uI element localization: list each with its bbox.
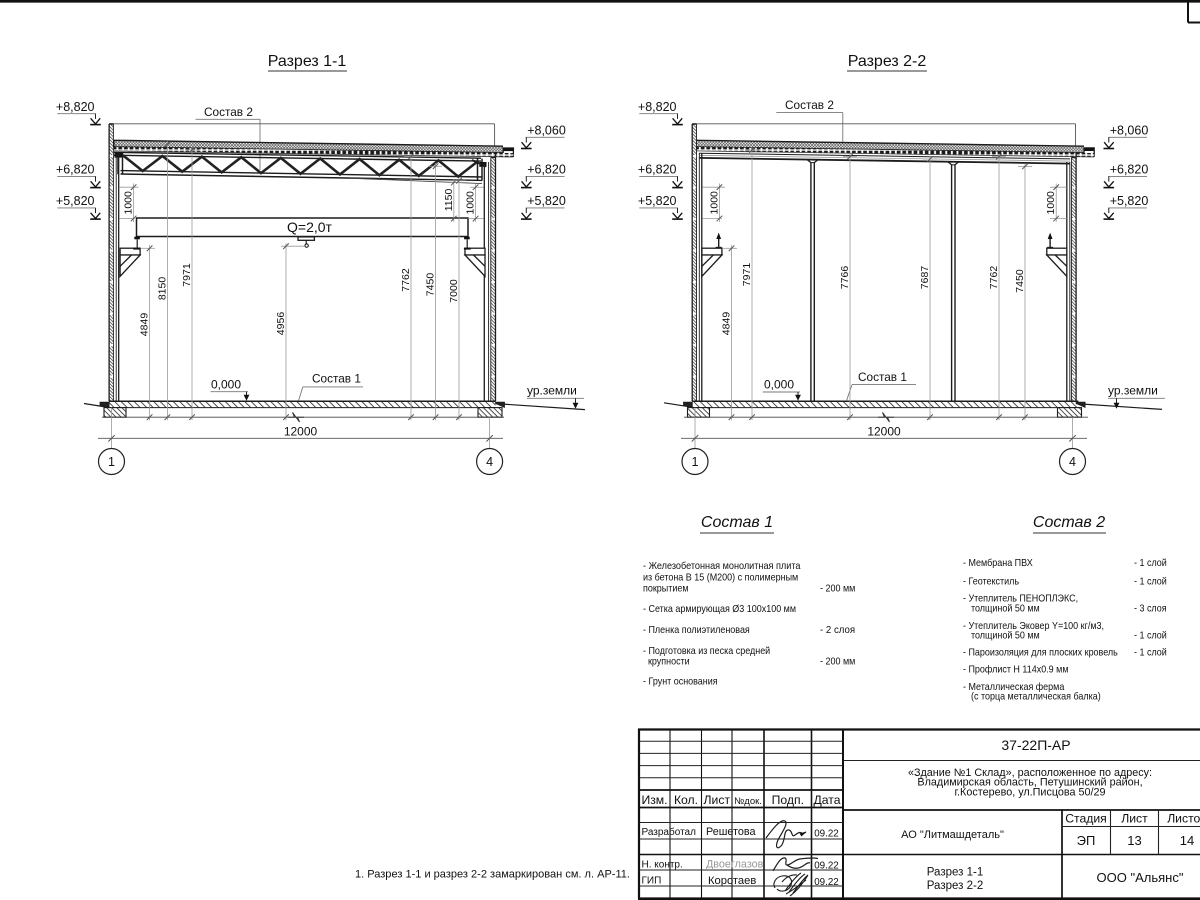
svg-text:Состав 2: Состав 2 bbox=[785, 98, 834, 112]
svg-text:7687: 7687 bbox=[919, 266, 931, 290]
svg-text:1000: 1000 bbox=[1045, 191, 1057, 215]
svg-text:- Пароизоляция для плоских кро: - Пароизоляция для плоских кровель bbox=[963, 648, 1118, 659]
svg-text:Разработал: Разработал bbox=[642, 826, 697, 838]
svg-text:- 2 слоя: - 2 слоя bbox=[820, 625, 855, 636]
svg-text:4: 4 bbox=[1069, 455, 1076, 469]
svg-text:8150: 8150 bbox=[156, 277, 168, 301]
svg-text:- 1 слой: - 1 слой bbox=[1134, 648, 1167, 659]
svg-text:+6,820: +6,820 bbox=[1110, 163, 1149, 177]
svg-text:- 1 слой: - 1 слой bbox=[1134, 631, 1167, 642]
svg-text:Q=2,0т: Q=2,0т bbox=[287, 219, 333, 235]
svg-text:(с торца металлическая балка): (с торца металлическая балка) bbox=[971, 691, 1101, 703]
svg-text:1150: 1150 bbox=[443, 189, 455, 212]
svg-text:37-22П-АР: 37-22П-АР bbox=[1001, 737, 1070, 753]
svg-text:Состав 2: Состав 2 bbox=[1033, 514, 1105, 531]
svg-text:7766: 7766 bbox=[839, 266, 851, 290]
svg-text:4: 4 bbox=[486, 455, 493, 469]
svg-text:- 3 слоя: - 3 слоя bbox=[1134, 604, 1167, 615]
svg-text:Лист: Лист bbox=[704, 793, 731, 807]
svg-text:- Сетка армирующая Ø3 100х100: - Сетка армирующая Ø3 100х100 мм bbox=[643, 604, 796, 615]
svg-text:+5,820: +5,820 bbox=[56, 194, 95, 208]
svg-text:12000: 12000 bbox=[284, 424, 318, 438]
svg-text:1. Разрез 1-1 и разрез 2-2 зам: 1. Разрез 1-1 и разрез 2-2 замаркирован … bbox=[355, 869, 630, 881]
svg-text:7971: 7971 bbox=[741, 263, 753, 287]
svg-text:Листов: Листов bbox=[1167, 812, 1200, 826]
svg-text:7762: 7762 bbox=[400, 268, 412, 292]
svg-text:АО "Литмашдеталь": АО "Литмашдеталь" bbox=[901, 829, 1004, 841]
svg-text:1: 1 bbox=[692, 455, 699, 469]
svg-text:7000: 7000 bbox=[448, 279, 460, 303]
svg-text:Разрез 2-2: Разрез 2-2 bbox=[848, 53, 927, 70]
svg-text:толщиной 50 мм: толщиной 50 мм bbox=[971, 631, 1040, 642]
svg-text:09.22: 09.22 bbox=[814, 877, 839, 888]
svg-text:ур.земли: ур.земли bbox=[1108, 384, 1158, 398]
svg-text:7450: 7450 bbox=[1014, 269, 1026, 293]
svg-text:Кол.: Кол. bbox=[674, 793, 698, 807]
svg-text:ООО "Альянс": ООО "Альянс" bbox=[1097, 870, 1184, 885]
svg-text:покрытием: покрытием bbox=[643, 584, 689, 595]
svg-text:4956: 4956 bbox=[275, 312, 287, 336]
svg-text:09.22: 09.22 bbox=[814, 829, 839, 840]
svg-text:№док.: №док. bbox=[734, 796, 762, 807]
svg-text:Разрез 1-1: Разрез 1-1 bbox=[927, 866, 983, 878]
svg-text:Коротаев: Коротаев bbox=[708, 875, 756, 887]
svg-text:+8,060: +8,060 bbox=[1110, 124, 1149, 138]
svg-text:+8,820: +8,820 bbox=[56, 100, 95, 114]
svg-text:Н. контр.: Н. контр. bbox=[642, 859, 683, 870]
svg-text:- 200 мм: - 200 мм bbox=[820, 657, 855, 668]
svg-text:Разрез 2-2: Разрез 2-2 bbox=[927, 880, 983, 892]
svg-text:7450: 7450 bbox=[425, 273, 437, 297]
svg-text:из бетона В 15 (М200) с полиме: из бетона В 15 (М200) с полимерным bbox=[643, 572, 798, 584]
svg-text:Двоеглазов: Двоеглазов bbox=[706, 858, 764, 870]
svg-text:Решетова: Решетова bbox=[706, 826, 756, 838]
svg-text:12000: 12000 bbox=[867, 424, 901, 438]
svg-text:толщиной 50 мм: толщиной 50 мм bbox=[971, 604, 1040, 615]
svg-text:1: 1 bbox=[108, 455, 115, 469]
svg-text:+8,820: +8,820 bbox=[638, 100, 677, 114]
svg-text:4849: 4849 bbox=[721, 312, 733, 336]
svg-text:Состав 2: Состав 2 bbox=[204, 105, 253, 119]
svg-text:Изм.: Изм. bbox=[641, 793, 667, 807]
svg-text:+6,820: +6,820 bbox=[56, 163, 95, 177]
svg-text:+8,060: +8,060 bbox=[527, 124, 566, 138]
svg-text:- 200 мм: - 200 мм bbox=[820, 584, 855, 595]
svg-text:Подп.: Подп. bbox=[772, 793, 804, 807]
svg-text:ГИП: ГИП bbox=[642, 876, 662, 887]
svg-text:1000: 1000 bbox=[708, 191, 720, 215]
svg-text:7762: 7762 bbox=[988, 266, 1000, 290]
svg-text:13: 13 bbox=[1127, 833, 1141, 848]
svg-text:Разрез 1-1: Разрез 1-1 bbox=[268, 53, 347, 70]
svg-text:7971: 7971 bbox=[181, 263, 193, 287]
svg-text:г.Костерево, ул.Писцова 50/29: г.Костерево, ул.Писцова 50/29 bbox=[954, 786, 1105, 798]
svg-text:- 1 слой: - 1 слой bbox=[1134, 558, 1167, 569]
svg-text:- Пленка полиэтиленовая: - Пленка полиэтиленовая bbox=[643, 625, 750, 636]
svg-text:4849: 4849 bbox=[139, 313, 151, 337]
svg-text:крупности: крупности bbox=[643, 657, 690, 668]
svg-text:- Подготовка из песка средней: - Подготовка из песка средней bbox=[643, 646, 770, 657]
svg-text:Стадия: Стадия bbox=[1065, 812, 1107, 826]
svg-text:+6,820: +6,820 bbox=[638, 163, 677, 177]
svg-text:0,000: 0,000 bbox=[764, 378, 794, 392]
svg-text:14: 14 bbox=[1180, 833, 1194, 848]
svg-text:Состав 1: Состав 1 bbox=[858, 370, 907, 384]
svg-text:- Железобетонная монолитная п: - Железобетонная монолитная плита bbox=[643, 560, 801, 572]
svg-text:- Геотекстиль: - Геотекстиль bbox=[963, 577, 1019, 588]
svg-text:- Грунт основания: - Грунт основания bbox=[643, 677, 718, 688]
svg-text:+5,820: +5,820 bbox=[638, 194, 677, 208]
svg-text:- Мембрана ПВХ: - Мембрана ПВХ bbox=[963, 557, 1033, 569]
svg-text:Состав 1: Состав 1 bbox=[312, 372, 361, 386]
svg-text:Состав 1: Состав 1 bbox=[701, 514, 773, 531]
svg-text:0,000: 0,000 bbox=[211, 377, 241, 391]
svg-text:- Профлист Н 114х0.9 мм: - Профлист Н 114х0.9 мм bbox=[963, 664, 1069, 676]
svg-text:- 1 слой: - 1 слой bbox=[1134, 577, 1167, 588]
svg-text:ур.земли: ур.земли bbox=[527, 384, 577, 398]
svg-text:+6,820: +6,820 bbox=[527, 163, 566, 177]
svg-text:Лист: Лист bbox=[1121, 812, 1148, 826]
svg-text:09.22: 09.22 bbox=[814, 861, 839, 872]
svg-text:1000: 1000 bbox=[123, 191, 135, 215]
svg-text:+5,820: +5,820 bbox=[527, 194, 566, 208]
svg-text:1000: 1000 bbox=[465, 191, 477, 215]
svg-text:+5,820: +5,820 bbox=[1110, 194, 1149, 208]
svg-text:Дата: Дата bbox=[814, 793, 841, 807]
svg-text:ЭП: ЭП bbox=[1077, 833, 1096, 848]
